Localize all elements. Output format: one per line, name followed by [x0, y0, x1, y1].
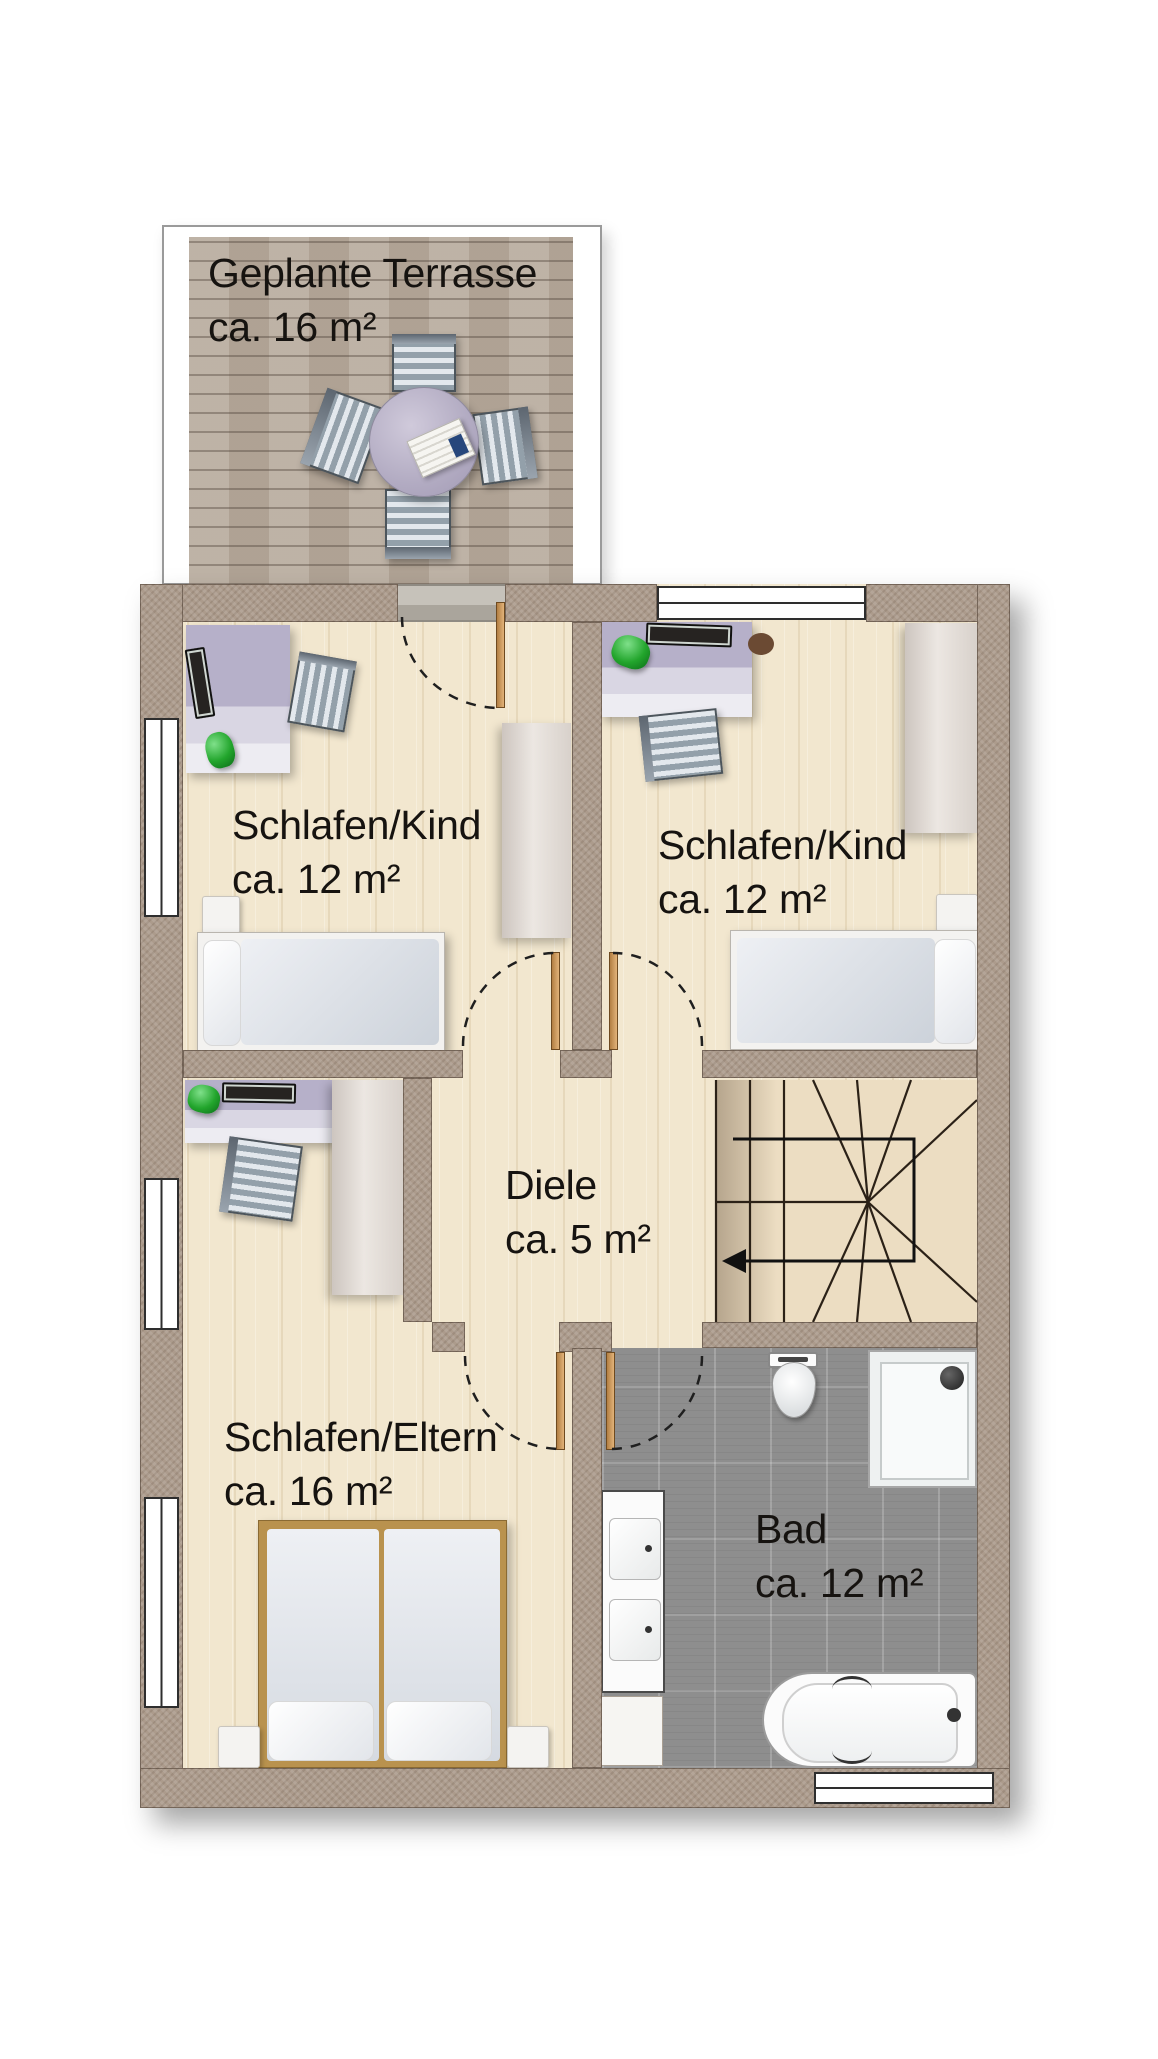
- room-label-kind2: Schlafen/Kind ca. 12 m²: [658, 818, 907, 926]
- nightstand: [218, 1726, 260, 1768]
- wall-under-bedroom1: [183, 1050, 463, 1078]
- wall-stub-cap-top: [560, 1050, 612, 1078]
- room-area: ca. 16 m²: [208, 300, 537, 354]
- room-label-kind1: Schlafen/Kind ca. 12 m²: [232, 798, 481, 906]
- wardrobe: [332, 1080, 403, 1295]
- newspaper-photo: [448, 434, 469, 458]
- single-bed: [730, 930, 979, 1050]
- bed-pillow: [934, 939, 976, 1044]
- wardrobe: [905, 623, 977, 833]
- shower-drain: [940, 1366, 964, 1390]
- wall-cap-eltern-door: [432, 1322, 465, 1352]
- room-label-terrasse: Geplante Terrasse ca. 16 m²: [208, 246, 537, 354]
- room-label-bad: Bad ca. 12 m²: [755, 1502, 923, 1610]
- wall-below-stairs: [702, 1322, 977, 1348]
- terrace-chair-bottom: [385, 489, 451, 559]
- shower: [868, 1350, 977, 1488]
- terrace-door-threshold: [398, 584, 505, 622]
- wall-top-mid: [505, 584, 657, 622]
- window: [144, 1497, 179, 1708]
- bathtub-handle: [832, 1676, 872, 1689]
- wall-above-stairs: [702, 1050, 977, 1078]
- double-bed: [258, 1520, 507, 1768]
- bed-pillow: [268, 1701, 374, 1761]
- wall-bedroom-divider: [572, 622, 602, 1050]
- stair-treads: [716, 1080, 977, 1322]
- room-name: Diele: [505, 1158, 651, 1212]
- nightstand: [507, 1726, 549, 1768]
- room-area: ca. 5 m²: [505, 1212, 651, 1266]
- window: [814, 1772, 994, 1804]
- staircase: [715, 1080, 977, 1322]
- door-leaf-bedroom1: [551, 952, 560, 1050]
- wall-eltern-diele: [403, 1078, 432, 1322]
- window: [144, 718, 179, 917]
- window: [657, 586, 866, 620]
- bed-duvet: [737, 938, 935, 1043]
- stair-direction-arrow-icon: [722, 1249, 746, 1273]
- wall-eltern-bad: [572, 1348, 602, 1768]
- nightstand: [936, 894, 978, 932]
- terrace-chair-right: [472, 406, 537, 485]
- bed-pillow: [203, 940, 241, 1046]
- washbasin: [609, 1599, 661, 1661]
- monitor: [222, 1082, 296, 1103]
- bathtub: [762, 1672, 977, 1768]
- room-area: ca. 12 m²: [755, 1556, 923, 1610]
- washbasin-vanity: [601, 1490, 665, 1693]
- monitor-stand: [748, 633, 774, 655]
- door-leaf-bedroom2: [609, 952, 618, 1050]
- staircase-treads-svg: [715, 1080, 977, 1322]
- room-area: ca. 12 m²: [232, 852, 481, 906]
- room-name: Schlafen/Kind: [658, 818, 907, 872]
- wardrobe: [502, 723, 571, 938]
- bathtub-faucet: [947, 1708, 961, 1722]
- room-name: Geplante Terrasse: [208, 246, 537, 300]
- washbasin: [609, 1518, 661, 1580]
- bed-duvet: [241, 939, 439, 1045]
- monitor: [646, 623, 733, 648]
- terrace-chair-backrest: [385, 547, 451, 559]
- office-chair: [219, 1136, 303, 1222]
- door-leaf-bad: [606, 1352, 615, 1450]
- wall-right: [977, 584, 1010, 1808]
- single-bed: [197, 932, 445, 1052]
- floor-plan: Geplante Terrasse ca. 16 m² Schlafen/Kin…: [0, 0, 1158, 2059]
- door-leaf-eltern: [556, 1352, 565, 1450]
- room-name: Schlafen/Eltern: [224, 1410, 498, 1464]
- office-chair: [287, 652, 357, 733]
- window: [144, 1178, 179, 1330]
- bed-pillow: [386, 1701, 492, 1761]
- room-area: ca. 12 m²: [658, 872, 907, 926]
- faucet-dot: [645, 1545, 652, 1552]
- room-label-eltern: Schlafen/Eltern ca. 16 m²: [224, 1410, 498, 1518]
- bathroom-cabinet: [601, 1696, 663, 1766]
- office-chair: [639, 708, 723, 782]
- faucet-dot: [645, 1626, 652, 1633]
- room-name: Bad: [755, 1502, 923, 1556]
- room-name: Schlafen/Kind: [232, 798, 481, 852]
- room-label-diele: Diele ca. 5 m²: [505, 1158, 651, 1266]
- door-leaf-terrace: [496, 602, 505, 708]
- room-area: ca. 16 m²: [224, 1464, 498, 1518]
